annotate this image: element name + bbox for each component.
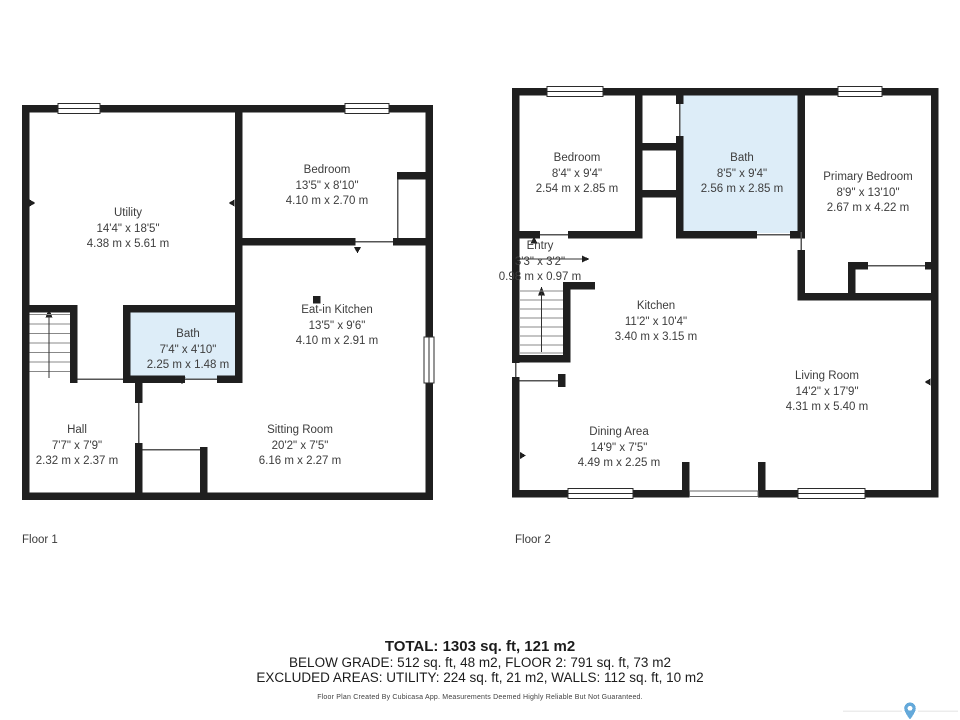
room-name: Sitting Room <box>259 423 341 439</box>
room-label-bath-f2: Bath 8'5" x 9'4" 2.56 m x 2.85 m <box>701 151 783 198</box>
room-dims-imperial: 7'4" x 4'10" <box>147 342 229 358</box>
room-dims-metric: 3.40 m x 3.15 m <box>615 330 697 346</box>
room-dims-imperial: 20'2" x 7'5" <box>259 438 341 454</box>
room-dims-imperial: 14'2" x 17'9" <box>786 384 868 400</box>
room-name: Bedroom <box>286 163 368 179</box>
room-name: Entry <box>499 239 581 255</box>
room-dims-imperial: 11'2" x 10'4" <box>615 314 697 330</box>
room-name: Bath <box>147 327 229 343</box>
room-label-bath-f1: Bath 7'4" x 4'10" 2.25 m x 1.48 m <box>147 327 229 374</box>
room-dims-imperial: 3'3" x 3'2" <box>499 254 581 270</box>
room-dims-imperial: 13'5" x 9'6" <box>296 318 378 334</box>
disclaimer-text: Floor Plan Created By Cubicasa App. Meas… <box>0 694 960 701</box>
summary-excluded-areas: EXCLUDED AREAS: UTILITY: 224 sq. ft, 21 … <box>0 670 960 685</box>
room-dims-imperial: 14'4" x 18'5" <box>87 221 169 237</box>
room-dims-imperial: 7'7" x 7'9" <box>36 438 118 454</box>
room-label-sitting-room: Sitting Room 20'2" x 7'5" 6.16 m x 2.27 … <box>259 423 341 470</box>
room-label-kitchen: Kitchen 11'2" x 10'4" 3.40 m x 3.15 m <box>615 299 697 346</box>
room-dims-metric: 4.31 m x 5.40 m <box>786 400 868 416</box>
floor2-caption: Floor 2 <box>515 534 551 546</box>
room-name: Primary Bedroom <box>823 170 912 186</box>
room-label-bedroom-f2: Bedroom 8'4" x 9'4" 2.54 m x 2.85 m <box>536 151 618 198</box>
room-label-living-room: Living Room 14'2" x 17'9" 4.31 m x 5.40 … <box>786 369 868 416</box>
room-dims-metric: 4.49 m x 2.25 m <box>578 456 660 472</box>
room-label-entry: Entry 3'3" x 3'2" 0.98 m x 0.97 m <box>499 239 581 286</box>
cubicasa-pin-icon <box>843 703 958 720</box>
summary-total: TOTAL: 1303 sq. ft, 121 m2 <box>0 638 960 655</box>
room-dims-imperial: 8'4" x 9'4" <box>536 166 618 182</box>
room-dims-imperial: 8'9" x 13'10" <box>823 185 912 201</box>
room-name: Utility <box>87 206 169 222</box>
room-dims-imperial: 14'9" x 7'5" <box>578 440 660 456</box>
room-name: Bath <box>701 151 783 167</box>
room-name: Eat-in Kitchen <box>296 303 378 319</box>
room-dims-metric: 6.16 m x 2.27 m <box>259 454 341 470</box>
room-dims-metric: 2.54 m x 2.85 m <box>536 182 618 198</box>
room-label-utility: Utility 14'4" x 18'5" 4.38 m x 5.61 m <box>87 206 169 253</box>
floor1-stairs <box>30 315 71 379</box>
room-dims-metric: 2.25 m x 1.48 m <box>147 358 229 374</box>
room-dims-metric: 0.98 m x 0.97 m <box>499 270 581 286</box>
room-name: Hall <box>36 423 118 439</box>
floorplan-canvas <box>0 0 960 720</box>
room-dims-metric: 2.32 m x 2.37 m <box>36 454 118 470</box>
room-dims-imperial: 8'5" x 9'4" <box>701 166 783 182</box>
floor1-caption: Floor 1 <box>22 534 58 546</box>
room-label-bedroom-f1: Bedroom 13'5" x 8'10" 4.10 m x 2.70 m <box>286 163 368 210</box>
summary-below-grade: BELOW GRADE: 512 sq. ft, 48 m2, FLOOR 2:… <box>0 655 960 670</box>
area-summary: TOTAL: 1303 sq. ft, 121 m2 BELOW GRADE: … <box>0 638 960 701</box>
room-name: Living Room <box>786 369 868 385</box>
room-dims-metric: 2.67 m x 4.22 m <box>823 201 912 217</box>
room-dims-metric: 4.10 m x 2.91 m <box>296 334 378 350</box>
room-dims-metric: 4.10 m x 2.70 m <box>286 194 368 210</box>
room-dims-metric: 2.56 m x 2.85 m <box>701 182 783 198</box>
room-dims-imperial: 13'5" x 8'10" <box>286 178 368 194</box>
room-label-dining-area: Dining Area 14'9" x 7'5" 4.49 m x 2.25 m <box>578 425 660 472</box>
room-label-eat-in-kitchen: Eat-in Kitchen 13'5" x 9'6" 4.10 m x 2.9… <box>296 303 378 350</box>
floor2-patio-opening <box>690 491 759 497</box>
room-name: Dining Area <box>578 425 660 441</box>
room-label-hall: Hall 7'7" x 7'9" 2.32 m x 2.37 m <box>36 423 118 470</box>
room-dims-metric: 4.38 m x 5.61 m <box>87 237 169 253</box>
room-name: Bedroom <box>536 151 618 167</box>
room-name: Kitchen <box>615 299 697 315</box>
room-label-primary-bedroom: Primary Bedroom 8'9" x 13'10" 2.67 m x 4… <box>823 170 912 217</box>
